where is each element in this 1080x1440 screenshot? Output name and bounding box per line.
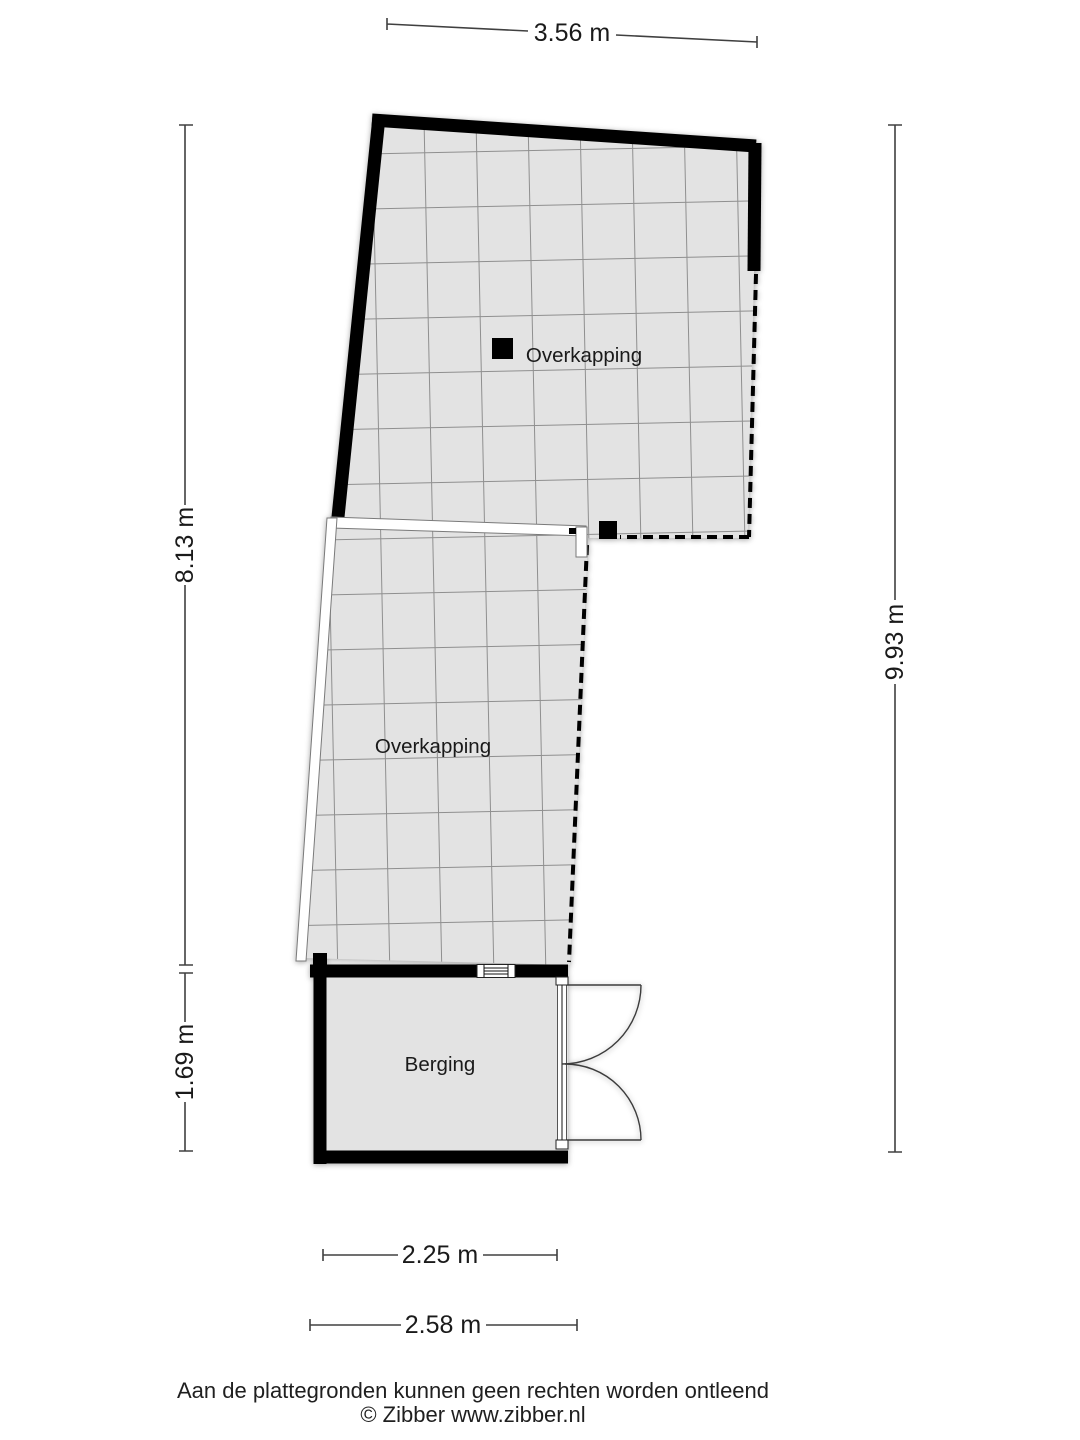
footer-copyright: © Zibber www.zibber.nl [360, 1402, 585, 1427]
wall-end-cap [569, 528, 576, 534]
door-swing-top [562, 985, 641, 1064]
dimension-left-upper: 8.13 m [171, 125, 199, 965]
door-swing-bottom [565, 1064, 641, 1140]
dimension-top: 3.56 m [387, 18, 757, 48]
door-post-bottom [556, 1140, 568, 1149]
dimension-bottom-inner: 2.25 m [323, 1241, 557, 1269]
dimension-right-label: 9.93 m [881, 604, 909, 680]
room-label-overkapping-lower: Overkapping [375, 735, 491, 758]
floorplan-page: Overkapping Overkapping Berging 3.56 m 8… [0, 0, 1080, 1440]
berging-wall-corner-nub [313, 953, 327, 967]
dimension-left-lower-label: 1.69 m [171, 1024, 199, 1100]
wall-right-upper [754, 143, 755, 271]
room-label-overkapping-upper: Overkapping [526, 344, 642, 367]
column-upper [492, 338, 513, 359]
dimension-right: 9.93 m [881, 125, 909, 1152]
dimension-bottom-outer-label: 2.58 m [405, 1311, 481, 1339]
dimension-left-lower: 1.69 m [171, 973, 199, 1151]
room-label-berging: Berging [405, 1053, 476, 1076]
floor-plan [296, 117, 757, 1164]
door-post-top [556, 977, 568, 985]
footer-disclaimer: Aan de plattegronden kunnen geen rechten… [177, 1378, 769, 1403]
column-junction [599, 521, 617, 539]
dimension-bottom-inner-label: 2.25 m [402, 1241, 478, 1269]
dimension-top-label: 3.56 m [534, 19, 610, 47]
double-door [556, 977, 641, 1149]
dimension-bottom-outer: 2.58 m [310, 1311, 577, 1339]
window [477, 965, 515, 978]
white-wall-stub [576, 527, 587, 557]
floor-plan-canvas: Overkapping Overkapping Berging 3.56 m 8… [0, 0, 1080, 1440]
dimension-left-upper-label: 8.13 m [171, 507, 199, 583]
